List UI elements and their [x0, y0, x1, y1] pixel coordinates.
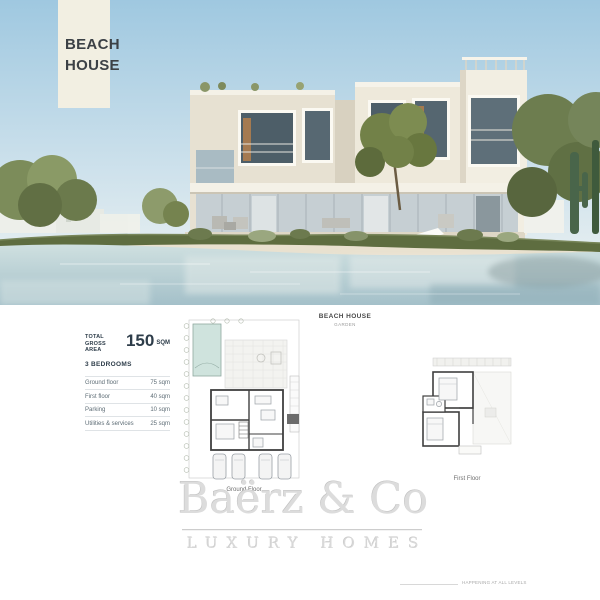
row-value: 10 sqm: [150, 407, 170, 413]
brand-name: Baërz & Co: [178, 474, 426, 524]
total-label-line2: GROSS AREA: [85, 341, 119, 354]
brand-divider: [182, 529, 422, 530]
table-row: Ground floor 75 sqm: [85, 376, 170, 390]
banner-line1: BEACH: [65, 34, 110, 55]
ground-floor-plan: [183, 318, 305, 484]
footnote-line: [400, 584, 458, 585]
brand-watermark: Baërz & Co LUXURY HOMES: [178, 474, 426, 552]
plan-heading-title: BEACH HOUSE: [290, 313, 400, 320]
plan-pool: [193, 324, 221, 376]
plan-pergola: [433, 358, 511, 366]
row-value: 75 sqm: [150, 380, 170, 386]
total-gross-area: TOTAL GROSS AREA 150 SQM: [85, 334, 170, 354]
row-label: First floor: [85, 394, 110, 400]
total-area-value: 150: [126, 334, 154, 348]
plan-heading: BEACH HOUSE GARDEN: [290, 313, 400, 327]
row-value: 40 sqm: [150, 394, 170, 400]
banner-line2: HOUSE: [65, 55, 110, 76]
brand-tagline: LUXURY HOMES: [178, 534, 426, 552]
table-row: First floor 40 sqm: [85, 389, 170, 403]
table-row: Parking 10 sqm: [85, 403, 170, 417]
row-label: Utilities & services: [85, 421, 134, 427]
total-area-unit: SQM: [156, 340, 170, 346]
first-floor-plan: [417, 352, 517, 470]
plan-heading-subtitle: GARDEN: [290, 322, 400, 327]
footnote-text: HAPPENING AT ALL LEVELS: [462, 580, 527, 585]
beach-house-banner: BEACH HOUSE: [58, 0, 110, 108]
first-floor-caption: First Floor: [417, 476, 517, 482]
row-label: Parking: [85, 407, 105, 413]
area-table: Ground floor 75 sqm First floor 40 sqm P…: [85, 376, 170, 431]
bedrooms-label: 3 BEDROOMS: [85, 361, 170, 368]
row-value: 25 sqm: [150, 421, 170, 427]
plan-utility-strip: [287, 376, 299, 432]
specs-panel: TOTAL GROSS AREA 150 SQM 3 BEDROOMS Grou…: [85, 334, 170, 431]
hero-photo: BEACH HOUSE: [0, 0, 600, 305]
plan-balcony: [459, 446, 481, 454]
table-row: Utilities & services 25 sqm: [85, 416, 170, 430]
plan-deck: [225, 340, 287, 388]
plan-roof-terrace: [473, 372, 511, 444]
row-label: Ground floor: [85, 380, 118, 386]
plan-stairs: [239, 422, 248, 438]
